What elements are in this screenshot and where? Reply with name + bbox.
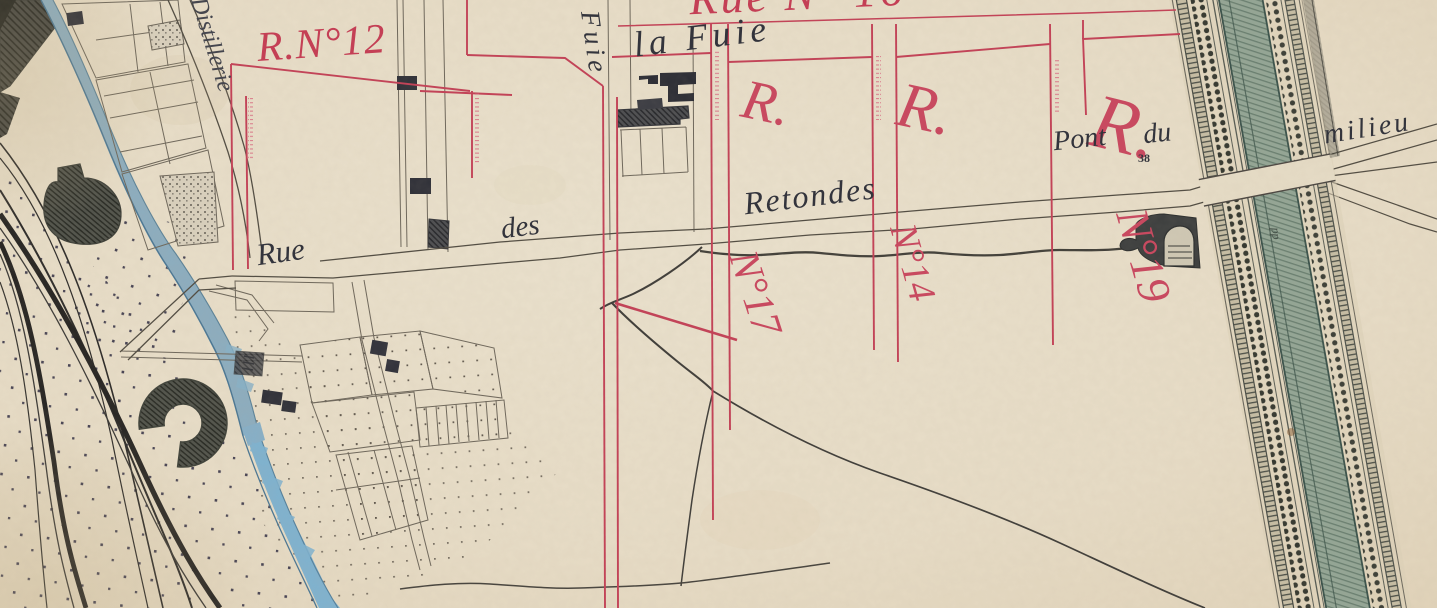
svg-text:Rue: Rue [253, 231, 307, 273]
svg-text:du: du [1142, 116, 1173, 150]
svg-text:Pont: Pont [1051, 121, 1109, 158]
svg-text:des: des [499, 209, 541, 245]
svg-text:R.N°12: R.N°12 [254, 16, 387, 71]
svg-text:38: 38 [1138, 151, 1150, 165]
